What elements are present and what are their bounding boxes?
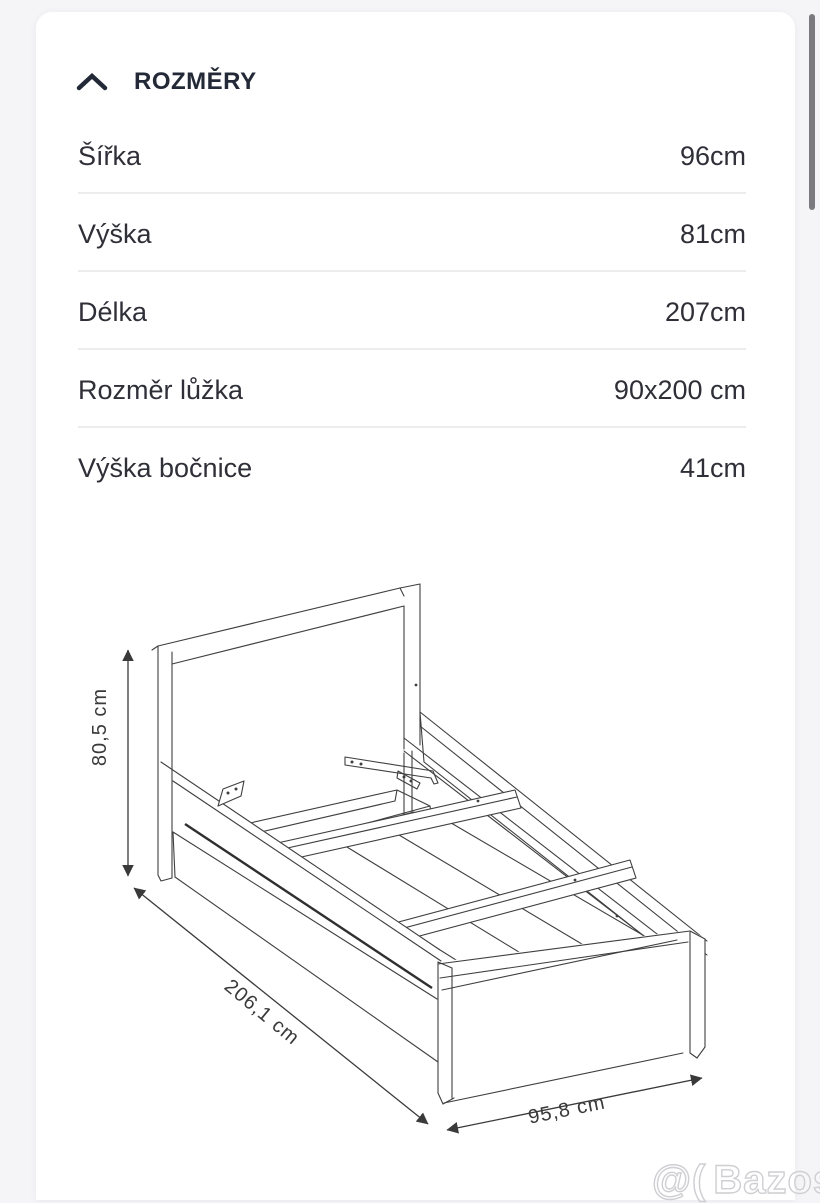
- bazos-camera-icon: @(: [652, 1158, 706, 1202]
- near-side-rail-drawing: [161, 762, 441, 1062]
- diagram-height-label: 80,5 cm: [89, 688, 111, 766]
- dimension-label: Šířka: [78, 141, 141, 172]
- table-row: Šířka 96cm: [78, 137, 746, 175]
- dimension-value: 90x200 cm: [614, 375, 746, 406]
- row-divider: [78, 192, 746, 194]
- row-divider: [78, 426, 746, 428]
- row-divider: [78, 348, 746, 350]
- dimension-value: 207cm: [665, 297, 746, 328]
- section-title: ROZMĚRY: [134, 68, 257, 96]
- bazos-watermark-text: Bazos.cz: [713, 1158, 820, 1202]
- dimensions-section-header[interactable]: ROZMĚRY: [76, 62, 257, 102]
- table-row: Délka 207cm: [78, 293, 746, 331]
- diagram-length-label: 206,1 cm: [220, 975, 304, 1049]
- table-row: Výška bočnice 41cm: [78, 449, 746, 487]
- bazos-watermark: @(Bazos.cz: [652, 1158, 820, 1203]
- dimension-value: 96cm: [680, 141, 746, 172]
- footboard-drawing: [438, 930, 705, 1105]
- scrollbar-thumb[interactable]: [809, 14, 815, 210]
- dimension-label: Rozměr lůžka: [78, 375, 243, 406]
- dimension-label: Délka: [78, 297, 147, 328]
- table-row: Rozměr lůžka 90x200 cm: [78, 371, 746, 409]
- dimensions-card: ROZMĚRY Šířka 96cm Výška 81cm Délka 207c…: [36, 12, 795, 1200]
- dimension-value: 81cm: [680, 219, 746, 250]
- table-row: Výška 81cm: [78, 215, 746, 253]
- dimension-label: Výška bočnice: [78, 453, 252, 484]
- row-divider: [78, 270, 746, 272]
- dimension-label: Výška: [78, 219, 152, 250]
- chevron-up-icon: [76, 73, 108, 91]
- bed-technical-diagram: 80,5 cm 206,1 cm 95,8 cm: [40, 575, 780, 1155]
- dimension-value: 41cm: [680, 453, 746, 484]
- diagram-width-label: 95,8 cm: [526, 1092, 607, 1129]
